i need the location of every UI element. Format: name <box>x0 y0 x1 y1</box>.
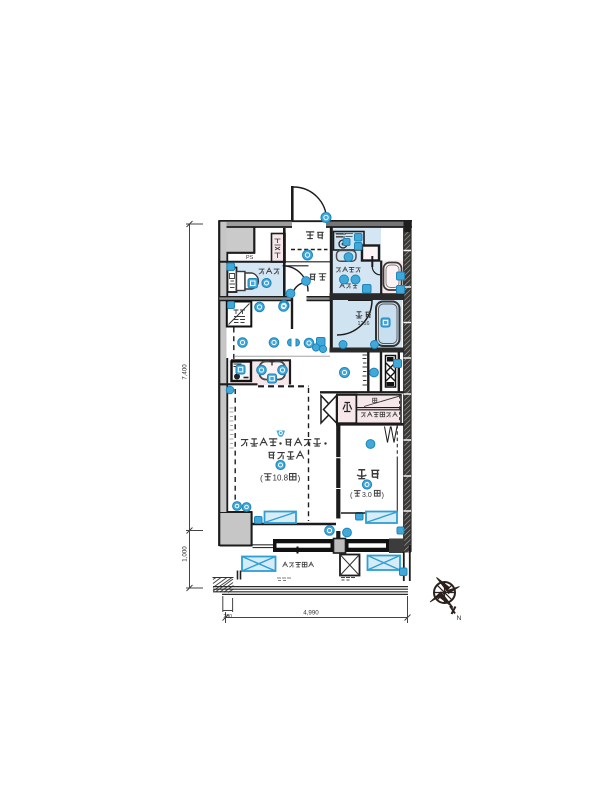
svg-text:(: ( <box>260 473 263 483</box>
svg-text:N: N <box>457 615 462 622</box>
svg-text:4,990: 4,990 <box>303 610 319 617</box>
svg-text:7,400: 7,400 <box>182 364 189 380</box>
svg-text:10.8: 10.8 <box>273 474 289 483</box>
svg-text:200: 200 <box>223 614 232 620</box>
svg-text:1216: 1216 <box>358 321 370 327</box>
svg-text:1,000: 1,000 <box>182 546 189 562</box>
svg-text:): ) <box>298 473 301 483</box>
svg-text:PS: PS <box>246 255 254 261</box>
svg-text:3.0: 3.0 <box>362 492 372 499</box>
